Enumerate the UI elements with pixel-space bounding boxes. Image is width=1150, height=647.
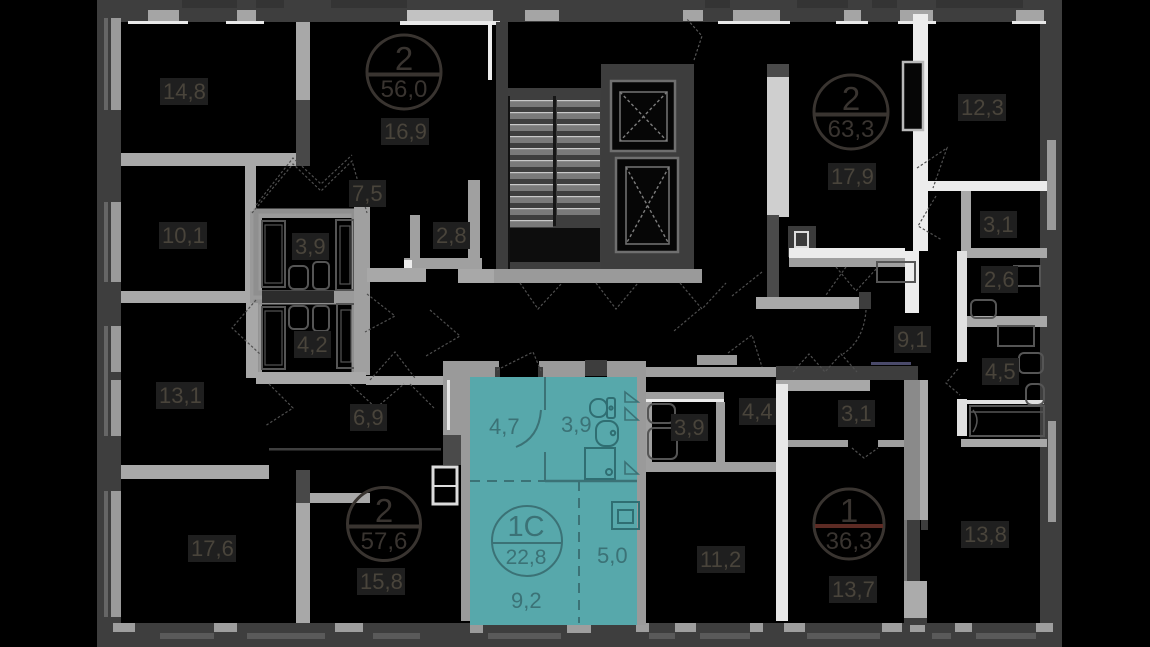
svg-text:16,9: 16,9 (384, 119, 427, 144)
svg-text:22,8: 22,8 (506, 546, 547, 569)
svg-text:57,6: 57,6 (361, 528, 408, 555)
svg-text:4,4: 4,4 (742, 399, 773, 424)
svg-text:3,9: 3,9 (295, 234, 326, 259)
svg-text:1: 1 (840, 492, 858, 529)
svg-text:11,2: 11,2 (700, 547, 741, 572)
svg-text:2: 2 (842, 80, 860, 117)
svg-text:4,5: 4,5 (985, 359, 1016, 384)
svg-text:13,7: 13,7 (832, 577, 875, 602)
svg-text:10,1: 10,1 (162, 223, 205, 248)
svg-text:3,9: 3,9 (674, 415, 705, 440)
svg-text:7,5: 7,5 (352, 181, 383, 206)
svg-text:9,2: 9,2 (511, 588, 542, 613)
svg-text:12,3: 12,3 (961, 95, 1004, 120)
svg-text:17,6: 17,6 (191, 536, 234, 561)
svg-text:4,7: 4,7 (489, 414, 520, 439)
svg-text:9,1: 9,1 (897, 327, 928, 352)
svg-text:3,1: 3,1 (983, 212, 1014, 237)
svg-text:15,8: 15,8 (360, 569, 403, 594)
svg-text:36,3: 36,3 (826, 528, 873, 555)
svg-text:4,2: 4,2 (297, 332, 328, 357)
svg-text:3,1: 3,1 (841, 401, 872, 426)
svg-text:5,0: 5,0 (597, 543, 628, 568)
svg-text:3,9: 3,9 (561, 412, 592, 437)
svg-text:2,6: 2,6 (984, 267, 1015, 292)
svg-text:6,9: 6,9 (353, 405, 384, 430)
svg-text:2: 2 (375, 492, 393, 529)
svg-text:63,3: 63,3 (828, 116, 875, 143)
svg-text:17,9: 17,9 (831, 164, 874, 189)
svg-text:1C: 1C (507, 511, 544, 543)
svg-text:56,0: 56,0 (381, 76, 428, 103)
svg-text:2,8: 2,8 (436, 223, 467, 248)
svg-text:2: 2 (395, 40, 413, 77)
svg-text:13,1: 13,1 (159, 383, 202, 408)
svg-text:14,8: 14,8 (163, 79, 206, 104)
svg-text:13,8: 13,8 (964, 522, 1007, 547)
